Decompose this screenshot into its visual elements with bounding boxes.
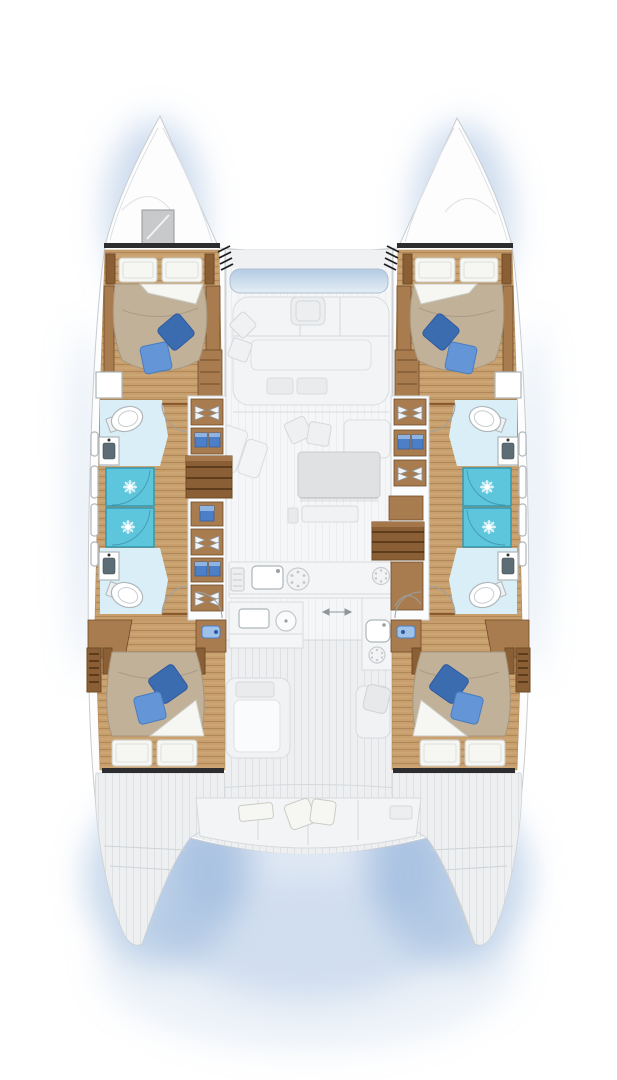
- sofa-pillow: [306, 421, 331, 446]
- catamaran-floor-plan: [0, 0, 617, 1080]
- shower-stall: [463, 468, 511, 506]
- bulkhead-line: [393, 768, 515, 773]
- glass-rack-icon: [191, 585, 223, 611]
- bench-pillow: [238, 802, 273, 821]
- dresser: [395, 350, 419, 396]
- stove-burner-icon: [369, 647, 385, 663]
- storage-bin-icon: [191, 428, 223, 454]
- glass-rack-icon: [191, 529, 223, 555]
- storage-bin-icon: [191, 558, 223, 582]
- stove-burner-icon: [373, 568, 390, 585]
- companionway-steps-port: [186, 456, 232, 498]
- bench-pillow: [309, 798, 336, 825]
- sink-icon: [99, 552, 119, 580]
- storage-shelves-port: [186, 396, 232, 620]
- step-landing: [389, 496, 423, 520]
- louver-cabinet-icon: [87, 648, 101, 692]
- shower-stall: [463, 508, 511, 547]
- louver-cabinet-icon: [516, 648, 530, 692]
- dining-table: [298, 452, 380, 498]
- shower-head-icon: [121, 520, 135, 534]
- glass-rack-icon: [394, 399, 426, 425]
- glass-rack-icon: [191, 399, 223, 425]
- bulkhead-line: [397, 243, 513, 248]
- shower-head-icon: [123, 480, 137, 494]
- shower-stall: [106, 508, 154, 547]
- storage-bin-icon: [191, 502, 223, 526]
- throw-pillow: [139, 341, 172, 374]
- sink-icon: [498, 552, 518, 580]
- stove-burner-icon: [287, 568, 309, 590]
- hull-port-interior: [87, 243, 233, 773]
- throw-pillow: [450, 691, 484, 725]
- galley-sink-icon: [239, 609, 269, 628]
- throw-pillow: [444, 341, 477, 374]
- bench: [302, 506, 358, 522]
- throw-pillow: [133, 691, 167, 725]
- shower-stall: [106, 468, 154, 506]
- seat-cushion: [297, 378, 327, 394]
- wet-bar-sink-icon: [366, 620, 390, 642]
- cabinet: [391, 562, 423, 610]
- seat-cushion: [267, 378, 293, 394]
- shower-head-icon: [480, 480, 494, 494]
- dresser: [198, 350, 222, 396]
- sink-icon: [99, 437, 119, 465]
- windshield: [230, 269, 388, 293]
- forward-lounge: [227, 297, 389, 412]
- transom-bench: [196, 797, 421, 848]
- shower-head-icon: [482, 520, 496, 534]
- salon: [210, 250, 393, 670]
- storage-bin-icon: [394, 430, 426, 456]
- sink-icon: [498, 437, 518, 465]
- companionway-steps-starboard: [372, 522, 424, 560]
- bulkhead-line: [102, 768, 224, 773]
- bulkhead-line: [104, 243, 220, 248]
- glass-rack-icon: [394, 460, 426, 486]
